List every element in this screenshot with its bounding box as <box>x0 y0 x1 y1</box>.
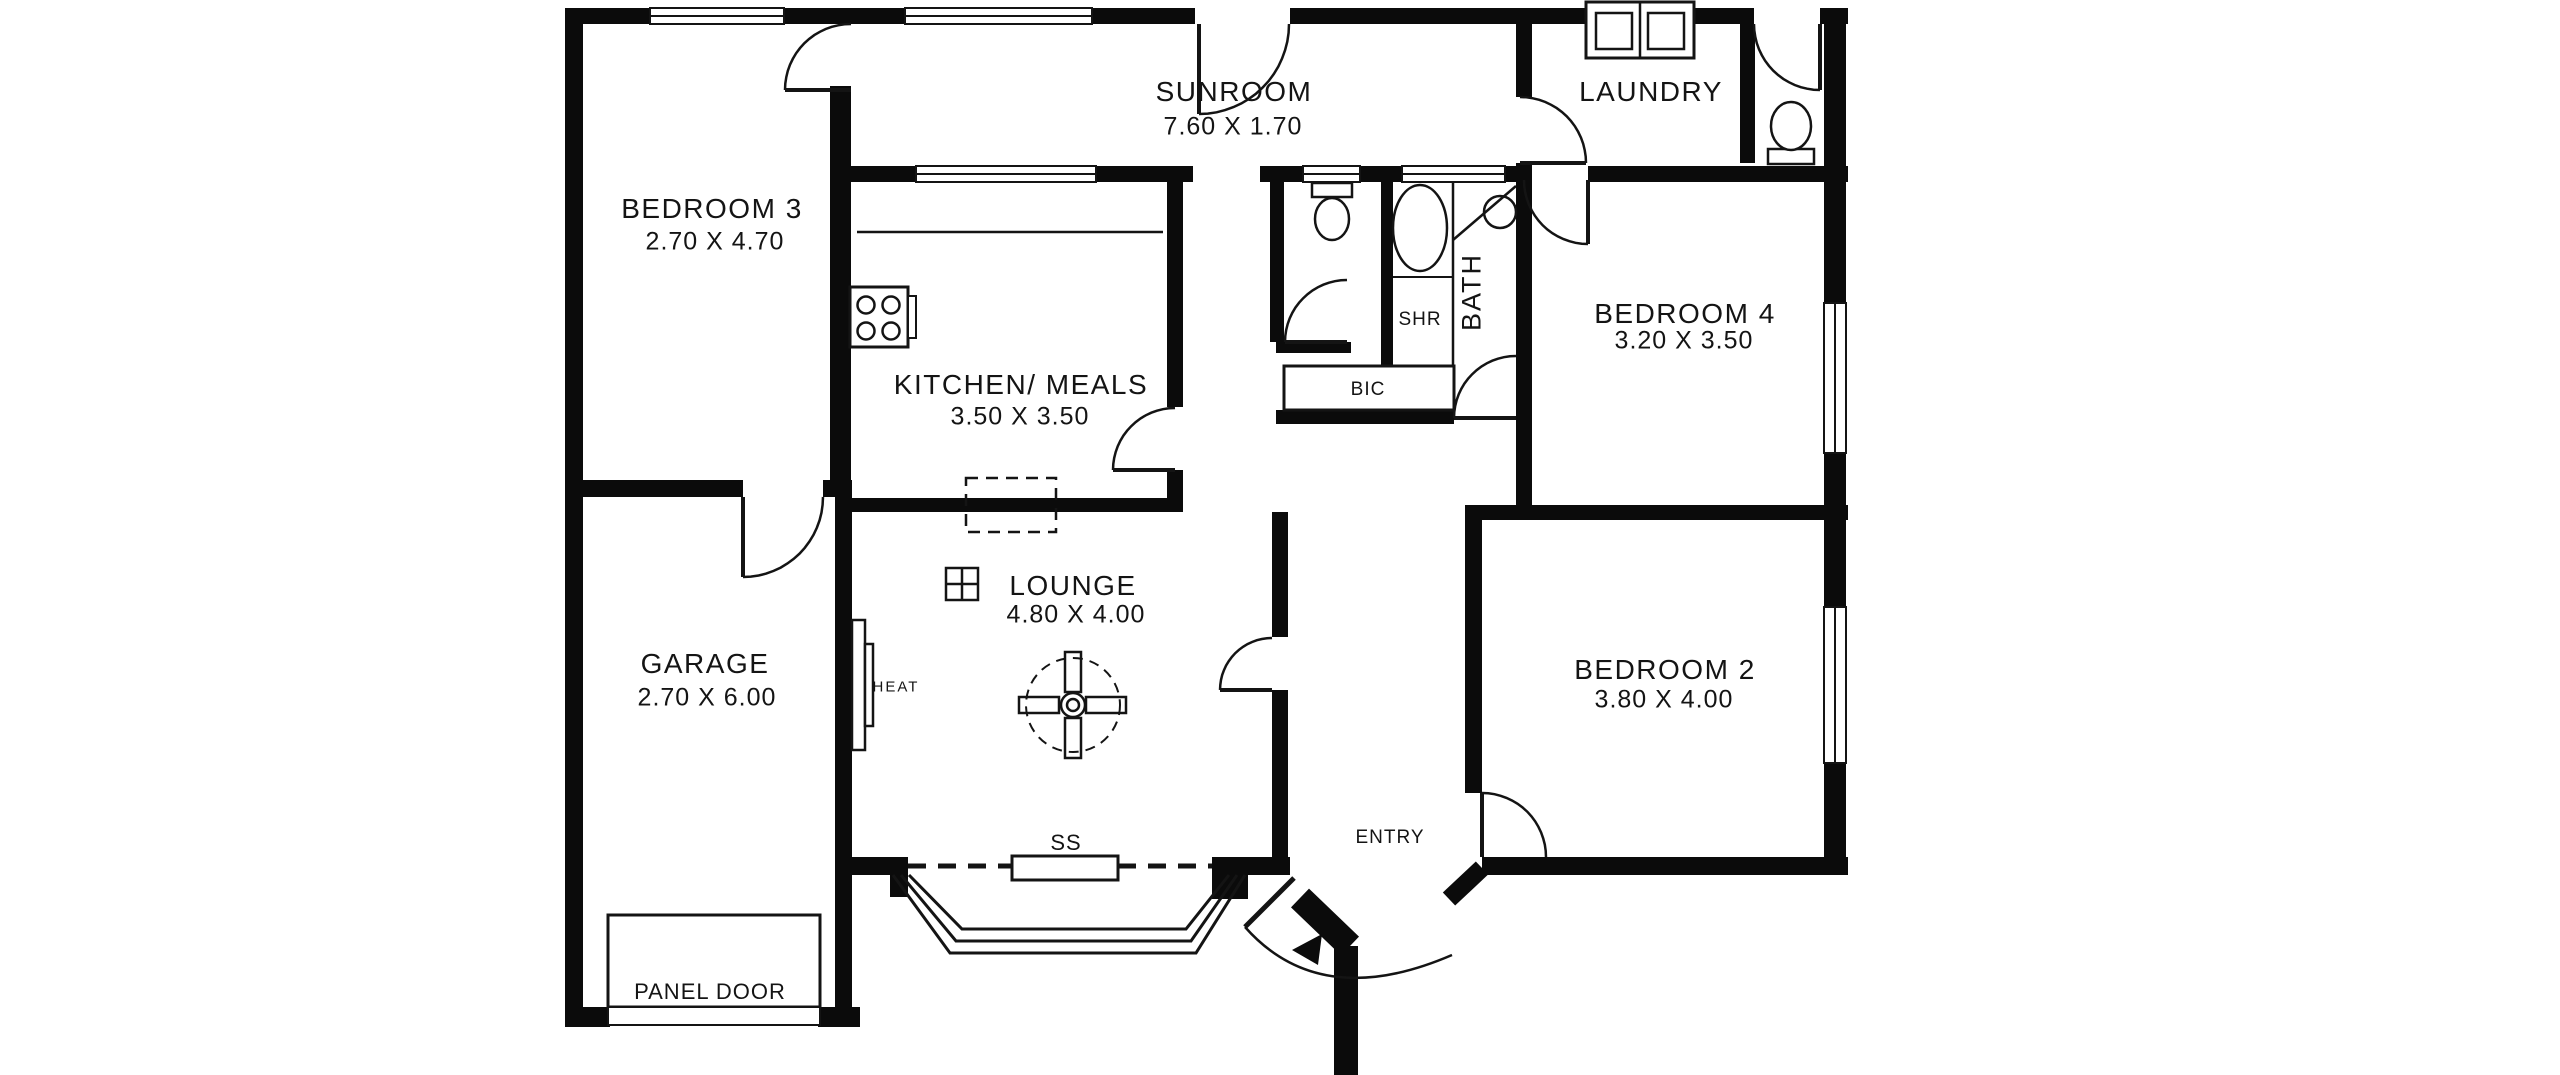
wall-lounge-top <box>852 498 1183 512</box>
wall-entry-diagonal <box>1300 898 1350 946</box>
room-label-sunroom: SUNROOM <box>1156 76 1313 108</box>
wall-bed3-right <box>830 86 851 497</box>
wall-laundry-wc <box>1740 24 1755 163</box>
wall-entry-vertical <box>1334 946 1358 1075</box>
window <box>905 8 1092 24</box>
window <box>650 8 784 24</box>
toilet-icon <box>1312 183 1352 240</box>
bay-window <box>893 875 1245 953</box>
wall-bed4-bed2 <box>1465 505 1848 520</box>
room-label-bedroom3: BEDROOM 3 <box>621 193 803 225</box>
window <box>916 166 1096 182</box>
window <box>1402 166 1505 182</box>
door-arc-lounge <box>1220 638 1272 690</box>
panel-door-slab <box>608 1007 820 1025</box>
bathtub-icon <box>1393 185 1447 271</box>
ss-box <box>1012 856 1118 880</box>
floorplan-canvas <box>0 0 2560 1075</box>
window <box>1824 607 1846 763</box>
wall-kitchen-right <box>1167 182 1183 407</box>
room-label-lounge: LOUNGE <box>1009 570 1136 602</box>
ceiling-fan-icon <box>1019 652 1126 758</box>
room-label-garage: GARAGE <box>641 648 770 680</box>
ss-label: SS <box>1050 830 1081 856</box>
room-dims-bedroom2: 3.80 X 4.00 <box>1595 686 1734 715</box>
room-label-kitchen: KITCHEN/ MEALS <box>894 369 1148 401</box>
wall-top <box>784 8 905 24</box>
wall-right-exterior <box>1824 8 1846 303</box>
room-dims-lounge: 4.80 X 4.00 <box>1007 601 1146 630</box>
wall-laundry-bottom <box>1505 166 1516 182</box>
heater-icon <box>852 620 873 750</box>
front-door-leaf <box>1245 878 1294 927</box>
heat-label: HEAT <box>873 679 920 696</box>
wall-bath-right <box>1516 24 1532 97</box>
entry-arrow-icon <box>1292 934 1322 965</box>
wall-wc-left <box>1270 182 1284 342</box>
room-label-entry: ENTRY <box>1355 827 1424 849</box>
wall-left-exterior <box>565 8 583 1022</box>
room-dims-bedroom3: 2.70 X 4.70 <box>646 228 785 257</box>
floorplan-page: SUNROOM 7.60 X 1.70 LAUNDRY BEDROOM 3 2.… <box>0 0 2560 1075</box>
wall-bath-right <box>1516 163 1532 505</box>
room-dims-bedroom4: 3.20 X 3.50 <box>1615 327 1754 356</box>
wall-garage-lounge <box>835 497 852 1007</box>
bath-label: BATH <box>1457 253 1488 331</box>
room-label-laundry: LAUNDRY <box>1579 76 1723 108</box>
door-arc-bedroom2 <box>1482 793 1546 857</box>
door-arc-laundry <box>1520 97 1586 163</box>
door-arc-bedroom4 <box>1524 180 1588 244</box>
window <box>1824 303 1846 453</box>
wall-garage-bottom <box>818 1007 860 1027</box>
wall-bed2-bottom <box>1482 857 1848 875</box>
room-label-bedroom2: BEDROOM 2 <box>1574 654 1756 686</box>
window <box>1303 166 1360 182</box>
room-label-bedroom4: BEDROOM 4 <box>1594 298 1776 330</box>
wall-top <box>1092 8 1195 24</box>
wall-bed3-garage <box>565 480 743 497</box>
wall-garage-bottom <box>565 1007 610 1027</box>
walls-diagonal <box>1300 868 1482 946</box>
wall-entry-diagonal-right <box>1449 868 1482 899</box>
wall-lounge-right <box>1272 690 1288 875</box>
panel-door-label: PANEL DOOR <box>634 979 786 1005</box>
wall-bath-bottom <box>1276 410 1454 424</box>
door-arc-kitchen <box>1113 408 1175 470</box>
basin-icon <box>1453 186 1516 240</box>
wall-sunroom-bottom <box>1360 166 1402 182</box>
vent-grid-icon <box>946 568 978 600</box>
wall-sunroom-bottom <box>1096 166 1193 182</box>
door-arc-bath <box>1454 356 1516 418</box>
door-arc-bed3-sunroom <box>785 24 851 90</box>
door-arc-wc-middle <box>1285 280 1347 342</box>
shower-label: SHR <box>1398 309 1441 331</box>
laundry-tub-icon <box>1586 2 1694 58</box>
wall-laundry-bottom <box>1588 166 1848 182</box>
wall-right-exterior <box>1824 453 1846 607</box>
wall-top <box>565 8 650 24</box>
room-dims-garage: 2.70 X 6.00 <box>638 684 777 713</box>
stove-icon <box>850 287 916 347</box>
wall-sunroom-bottom <box>1260 166 1303 182</box>
door-arc-wc-exterior <box>1754 24 1820 90</box>
wall-bed3-garage <box>823 480 852 497</box>
room-dims-kitchen: 3.50 X 3.50 <box>951 403 1090 432</box>
wall-lounge-bottom <box>852 857 908 875</box>
wall-lounge-right <box>1272 512 1288 637</box>
bic-label: BIC <box>1351 379 1386 401</box>
toilet-icon <box>1768 102 1814 164</box>
wall-bed2-left <box>1465 520 1482 793</box>
wall-kitchen-right <box>1167 470 1183 498</box>
room-dims-sunroom: 7.60 X 1.70 <box>1164 113 1303 142</box>
wall-top <box>1290 8 1516 24</box>
door-arc-garage <box>743 497 823 577</box>
